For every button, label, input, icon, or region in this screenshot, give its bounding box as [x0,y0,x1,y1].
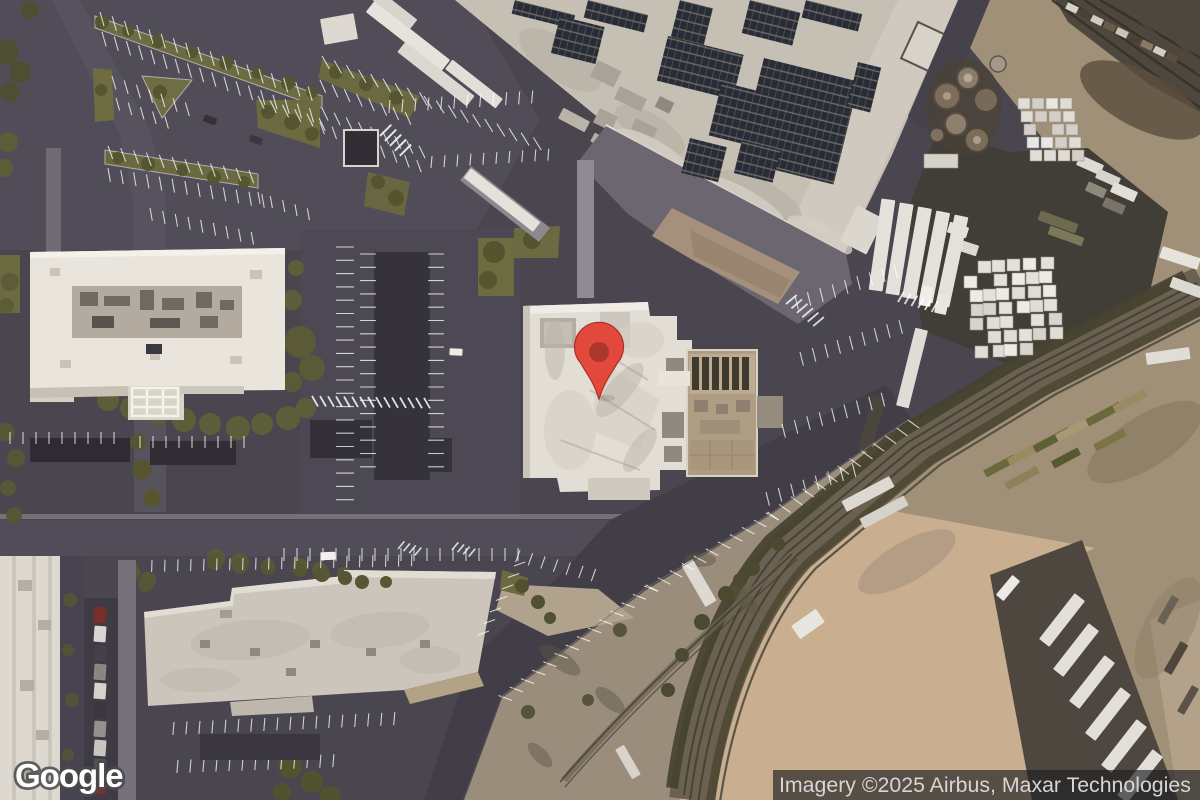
svg-text:Imagery ©2025 Airbus, Maxar Te: Imagery ©2025 Airbus, Maxar Technologies [779,773,1191,797]
svg-text:Google: Google [15,757,123,794]
